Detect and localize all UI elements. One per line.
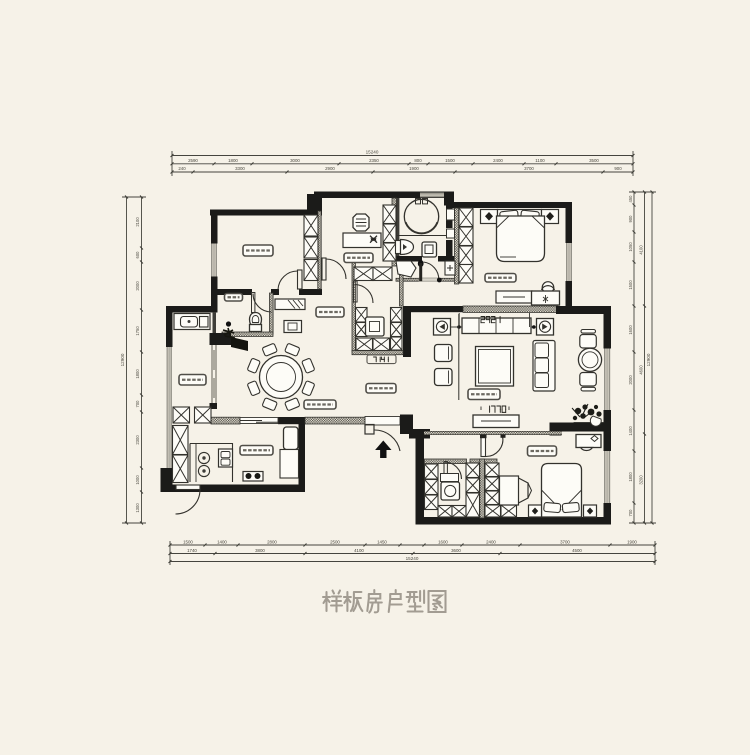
svg-text:2800: 2800 xyxy=(267,540,277,545)
svg-text:1450: 1450 xyxy=(377,540,387,545)
svg-text:3600: 3600 xyxy=(451,548,461,553)
svg-text:1600: 1600 xyxy=(438,540,448,545)
svg-text:12900: 12900 xyxy=(120,353,125,366)
svg-text:3000: 3000 xyxy=(290,158,300,163)
svg-text:2400: 2400 xyxy=(493,158,503,163)
svg-text:900: 900 xyxy=(614,166,622,171)
svg-text:2100: 2100 xyxy=(135,217,140,227)
svg-text:3300: 3300 xyxy=(235,166,245,171)
svg-text:12900: 12900 xyxy=(646,353,651,366)
svg-text:700: 700 xyxy=(628,509,633,517)
svg-text:2300: 2300 xyxy=(135,435,140,445)
svg-text:1400: 1400 xyxy=(217,540,227,545)
svg-text:1400: 1400 xyxy=(628,426,633,436)
svg-text:2000: 2000 xyxy=(628,375,633,385)
svg-text:15240: 15240 xyxy=(366,150,379,155)
svg-text:2500: 2500 xyxy=(330,540,340,545)
svg-text:2400: 2400 xyxy=(486,540,496,545)
svg-text:1500: 1500 xyxy=(183,540,193,545)
svg-text:1740: 1740 xyxy=(187,548,197,553)
svg-text:450: 450 xyxy=(628,195,633,203)
svg-text:1900: 1900 xyxy=(627,540,637,545)
svg-text:1100: 1100 xyxy=(535,158,545,163)
svg-text:1800: 1800 xyxy=(228,158,238,163)
svg-text:3700: 3700 xyxy=(560,540,570,545)
svg-text:1000: 1000 xyxy=(135,475,140,485)
svg-text:3700: 3700 xyxy=(524,166,534,171)
svg-text:1500: 1500 xyxy=(628,280,633,290)
svg-text:2000: 2000 xyxy=(135,281,140,291)
svg-text:1300: 1300 xyxy=(135,503,140,513)
svg-text:1050: 1050 xyxy=(628,242,633,252)
svg-text:700: 700 xyxy=(135,400,140,408)
svg-text:1800: 1800 xyxy=(135,369,140,379)
svg-text:2590: 2590 xyxy=(188,158,198,163)
svg-text:800: 800 xyxy=(414,158,422,163)
svg-text:1600: 1600 xyxy=(628,325,633,335)
svg-text:4100: 4100 xyxy=(639,245,644,255)
svg-text:4100: 4100 xyxy=(354,548,364,553)
svg-text:1500: 1500 xyxy=(445,158,455,163)
svg-text:600: 600 xyxy=(135,251,140,259)
svg-text:3200: 3200 xyxy=(639,475,644,485)
svg-text:1900: 1900 xyxy=(409,166,419,171)
svg-text:900: 900 xyxy=(628,215,633,223)
svg-text:4500: 4500 xyxy=(572,548,582,553)
svg-text:2900: 2900 xyxy=(325,166,335,171)
svg-text:3800: 3800 xyxy=(255,548,265,553)
svg-text:1750: 1750 xyxy=(135,326,140,336)
svg-text:240: 240 xyxy=(178,166,186,171)
svg-text:4600: 4600 xyxy=(639,365,644,375)
svg-text:2350: 2350 xyxy=(369,158,379,163)
svg-text:15240: 15240 xyxy=(406,556,419,561)
svg-text:1800: 1800 xyxy=(628,472,633,482)
svg-text:3500: 3500 xyxy=(589,158,599,163)
